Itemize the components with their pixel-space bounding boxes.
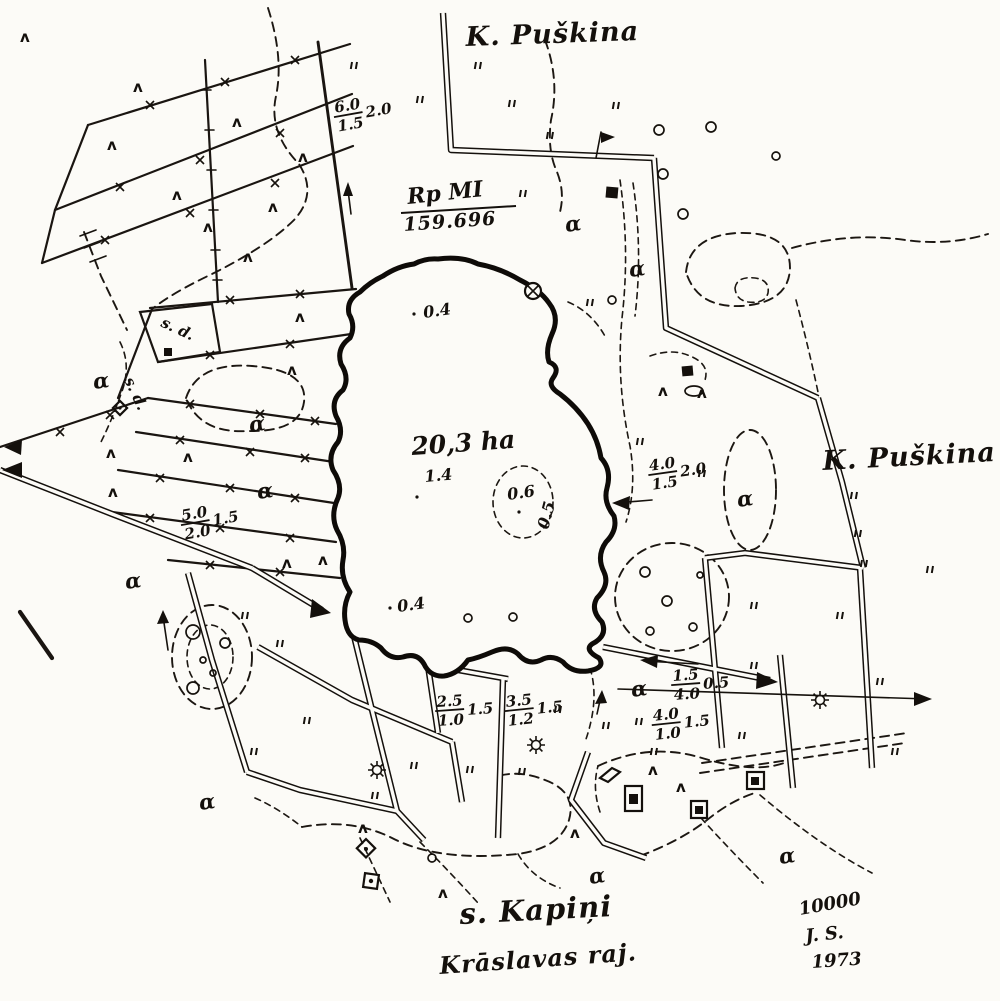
pit-circle-symbol	[646, 627, 654, 635]
tree-symbol: ʌ	[172, 186, 182, 204]
building-symbol	[751, 777, 759, 785]
road-spec-bottom-1: 2.5 1.0 1.5	[434, 689, 495, 730]
spec-side: 1.5	[467, 699, 494, 719]
spec-side: 1.5	[211, 507, 240, 529]
alpha-vegetation-symbol: α	[123, 567, 142, 594]
landmark-dot	[118, 406, 121, 409]
spec-denominator: 1.2	[507, 709, 535, 730]
road-fill	[818, 398, 863, 568]
tree-symbol: ʌ	[438, 884, 448, 902]
grass-tuft-symbol	[509, 100, 515, 107]
spring-symbol	[368, 761, 386, 779]
spec-denominator: 1.0	[437, 710, 465, 730]
grass-tuft-symbol	[651, 748, 657, 755]
dashed-path	[595, 766, 600, 812]
road-fill	[188, 573, 247, 772]
dashed-path	[650, 352, 706, 380]
building-symbol	[695, 806, 703, 814]
grass-tuft-symbol	[242, 612, 248, 619]
arrowhead	[595, 690, 607, 704]
alpha-vegetation-symbol: α	[777, 842, 796, 869]
surveyor-initials: J. S.	[801, 922, 844, 947]
pit-circle-symbol	[640, 567, 650, 577]
parcel-sd-label: s. d.	[158, 313, 197, 344]
dashed-path	[796, 300, 818, 392]
edge-mark	[20, 612, 52, 658]
road-fill	[860, 568, 872, 768]
fence-x-mark	[271, 179, 279, 187]
grass-tuft-symbol	[587, 299, 593, 306]
spec-denominator: 4.0	[673, 684, 701, 704]
grass-tuft-symbol	[411, 762, 417, 769]
spec-side: 2.0	[363, 99, 393, 122]
pit-circle-symbol	[697, 572, 703, 578]
circled-x-benchmark	[525, 283, 541, 299]
pit-circle-symbol	[689, 623, 697, 631]
spec-denominator: 1.5	[651, 472, 679, 493]
dashed-path	[152, 8, 307, 309]
alpha-vegetation-symbol: α	[255, 477, 274, 504]
fence-x-mark	[186, 209, 194, 217]
spec-denominator: 2.0	[182, 521, 212, 544]
spring-symbol	[527, 736, 545, 754]
pit-circle-symbol	[772, 152, 780, 160]
boundary-line	[42, 125, 88, 263]
pit-circle-symbol	[662, 596, 672, 606]
grass-tuft-symbol	[372, 792, 378, 799]
arrowhead	[612, 496, 630, 510]
spec-side: 1.5	[536, 697, 564, 718]
grass-tuft-symbol	[351, 62, 357, 69]
tree-symbol: ʌ	[183, 448, 193, 466]
pit-circle-symbol	[706, 122, 716, 132]
village-label-right: K. Puškina	[821, 437, 997, 477]
alpha-vegetation-symbol: α	[627, 255, 646, 282]
pit-circle-symbol	[678, 209, 688, 219]
tree-symbol: ʌ	[106, 444, 116, 462]
road-spec-left: 5.0 2.0 1.5	[178, 497, 242, 544]
alpha-vegetation-symbol: α	[629, 675, 648, 702]
pit-circle-symbol	[200, 657, 206, 663]
grass-tuft-symbol	[467, 766, 473, 773]
dashed-path	[84, 232, 127, 330]
sounding-dot	[412, 312, 415, 315]
village-label-bottom: s. Kapiņi	[458, 889, 613, 931]
arrowhead	[310, 599, 331, 618]
arrowhead	[756, 672, 778, 689]
grass-tuft-symbol	[751, 602, 757, 609]
grass-tuft-symbol	[475, 62, 481, 69]
grass-tuft-symbol	[877, 678, 883, 685]
depth-sounding: 0.6	[506, 481, 536, 504]
road-fill	[452, 742, 462, 802]
pit-circle-symbol	[654, 125, 664, 135]
tree-symbol: ʌ	[133, 78, 143, 96]
dashed-path	[255, 798, 302, 827]
pit-circle-symbol	[186, 625, 200, 639]
road-spec-southeast-2: 4.0 1.0 1.5	[650, 701, 712, 744]
grass-tuft-symbol	[636, 718, 642, 725]
lake-outline	[331, 258, 615, 676]
tree-symbol: ʌ	[697, 384, 707, 402]
tree-symbol: ʌ	[108, 483, 118, 501]
tree-symbol: ʌ	[107, 136, 117, 154]
grass-tuft-symbol	[837, 612, 843, 619]
tree-symbol: ʌ	[20, 28, 30, 46]
depth-sounding: 0.4	[396, 593, 426, 616]
survey-map: 6.0 1.5 2.0 4.0 1.5 2.0 5.0 2.0 1.5 2.5 …	[0, 0, 1000, 1001]
tree-symbol: ʌ	[676, 778, 686, 796]
grass-tuft-symbol	[851, 492, 857, 499]
alpha-vegetation-symbol: α	[587, 862, 606, 889]
road-fill	[397, 811, 424, 840]
dashed-path	[568, 302, 606, 338]
pit-circle-symbol	[608, 296, 616, 304]
tree-symbol: ʌ	[268, 198, 278, 216]
fence-x-mark	[156, 474, 164, 482]
grass-tuft-symbol	[637, 438, 643, 445]
dashed-path	[633, 183, 639, 316]
village-label-top: K. Puškina	[464, 16, 639, 53]
boundary-line	[148, 398, 336, 424]
dashed-path	[518, 854, 560, 888]
field-boundaries	[0, 42, 358, 658]
grass-tuft-symbol	[751, 662, 757, 669]
alpha-vegetation-symbol: α	[91, 367, 110, 394]
spec-numerator: 2.5	[435, 691, 463, 711]
shed-outline	[600, 768, 620, 782]
road-spec-top: 6.0 1.5 2.0	[331, 89, 395, 136]
dashed-area	[735, 278, 768, 303]
spec-denominator: 1.0	[654, 723, 682, 744]
spec-side: 0.5	[703, 673, 730, 693]
landmark-dot	[369, 879, 373, 883]
spec-side: 1.5	[683, 711, 711, 732]
dashed-path	[620, 180, 633, 522]
sounding-dot	[415, 495, 418, 498]
building-symbol	[682, 365, 694, 376]
tree-symbol: ʌ	[232, 113, 242, 131]
grass-tuft-symbol	[251, 748, 257, 755]
dashed-path	[585, 668, 594, 742]
boundary-line	[150, 289, 356, 308]
dashed-path	[792, 234, 988, 248]
grass-tuft-symbol	[520, 190, 526, 197]
depth-sounding: 0.4	[422, 299, 452, 322]
fence-x-mark	[106, 411, 114, 419]
pit-circle-symbol	[220, 638, 230, 648]
dashed-path	[545, 40, 562, 212]
alpha-vegetation-symbol: α	[563, 210, 582, 237]
grass-tuft-symbol	[927, 566, 933, 573]
spec-denominator: 1.5	[336, 113, 365, 135]
building-symbol	[164, 348, 172, 356]
tree-symbol: ʌ	[570, 824, 580, 842]
tree-symbol: ʌ	[203, 218, 213, 236]
tree-symbol: ʌ	[648, 761, 658, 779]
road-fill	[780, 655, 793, 788]
depth-sounding: 1.4	[424, 465, 453, 486]
pit-circle-symbol	[187, 682, 199, 694]
tree-symbol: ʌ	[295, 308, 305, 326]
tree-symbol: ʌ	[287, 361, 297, 379]
building-symbol	[629, 794, 638, 804]
spring-symbol	[811, 691, 829, 709]
grass-tuft-symbol	[304, 717, 310, 724]
tree-symbol: ʌ	[658, 382, 668, 400]
map-scale: 10000	[797, 888, 863, 920]
sounding-dot	[388, 606, 391, 609]
arrowhead	[157, 610, 169, 624]
district-label: Krāslavas raj.	[437, 937, 637, 980]
boundary-line	[88, 44, 350, 125]
spec-numerator: 1.5	[672, 665, 699, 685]
boundary-line	[205, 60, 218, 302]
dashed-path	[302, 774, 571, 856]
tree-symbol: ʌ	[358, 819, 368, 837]
fence-x-mark	[196, 156, 204, 164]
boundary-line	[318, 42, 352, 288]
arrowhead	[914, 692, 932, 706]
landmark-dot	[364, 847, 368, 851]
dashed-path	[100, 342, 126, 444]
boundary-line	[118, 470, 334, 503]
pit-circle-symbol	[658, 169, 668, 179]
alpha-vegetation-symbol: α	[735, 485, 754, 512]
grass-tuft-symbol	[417, 96, 423, 103]
sounding-dot	[517, 510, 520, 513]
alpha-vegetation-symbol: α	[247, 410, 266, 437]
dashed-path	[420, 842, 478, 903]
tree-symbol: ʌ	[243, 248, 253, 266]
benchmark-name: Rp MI	[405, 176, 485, 210]
grass-tuft-symbol	[613, 102, 619, 109]
dashed-area	[686, 233, 790, 306]
grass-tuft-symbol	[603, 722, 609, 729]
arrow-line	[618, 689, 928, 699]
grass-tuft-symbol	[739, 732, 745, 739]
spec-side: 2.0	[678, 459, 708, 481]
ditch-tick-marks	[80, 230, 106, 262]
alpha-vegetation-symbol: α	[197, 788, 216, 815]
dashed-path	[701, 818, 763, 883]
tree-symbol: ʌ	[298, 148, 308, 166]
tree-symbol: ʌ	[318, 551, 328, 569]
road-fill	[654, 158, 818, 398]
fence-x-mark	[276, 129, 284, 137]
dashed-path	[760, 795, 872, 873]
arrowhead	[343, 182, 353, 196]
grass-tuft-symbol	[892, 748, 898, 755]
survey-year: 1973	[811, 949, 862, 973]
grass-tuft-symbol	[277, 640, 283, 647]
building-symbol	[605, 186, 618, 198]
map-canvas: 6.0 1.5 2.0 4.0 1.5 2.0 5.0 2.0 1.5 2.5 …	[0, 0, 1000, 1001]
fence-x-mark	[56, 428, 64, 436]
